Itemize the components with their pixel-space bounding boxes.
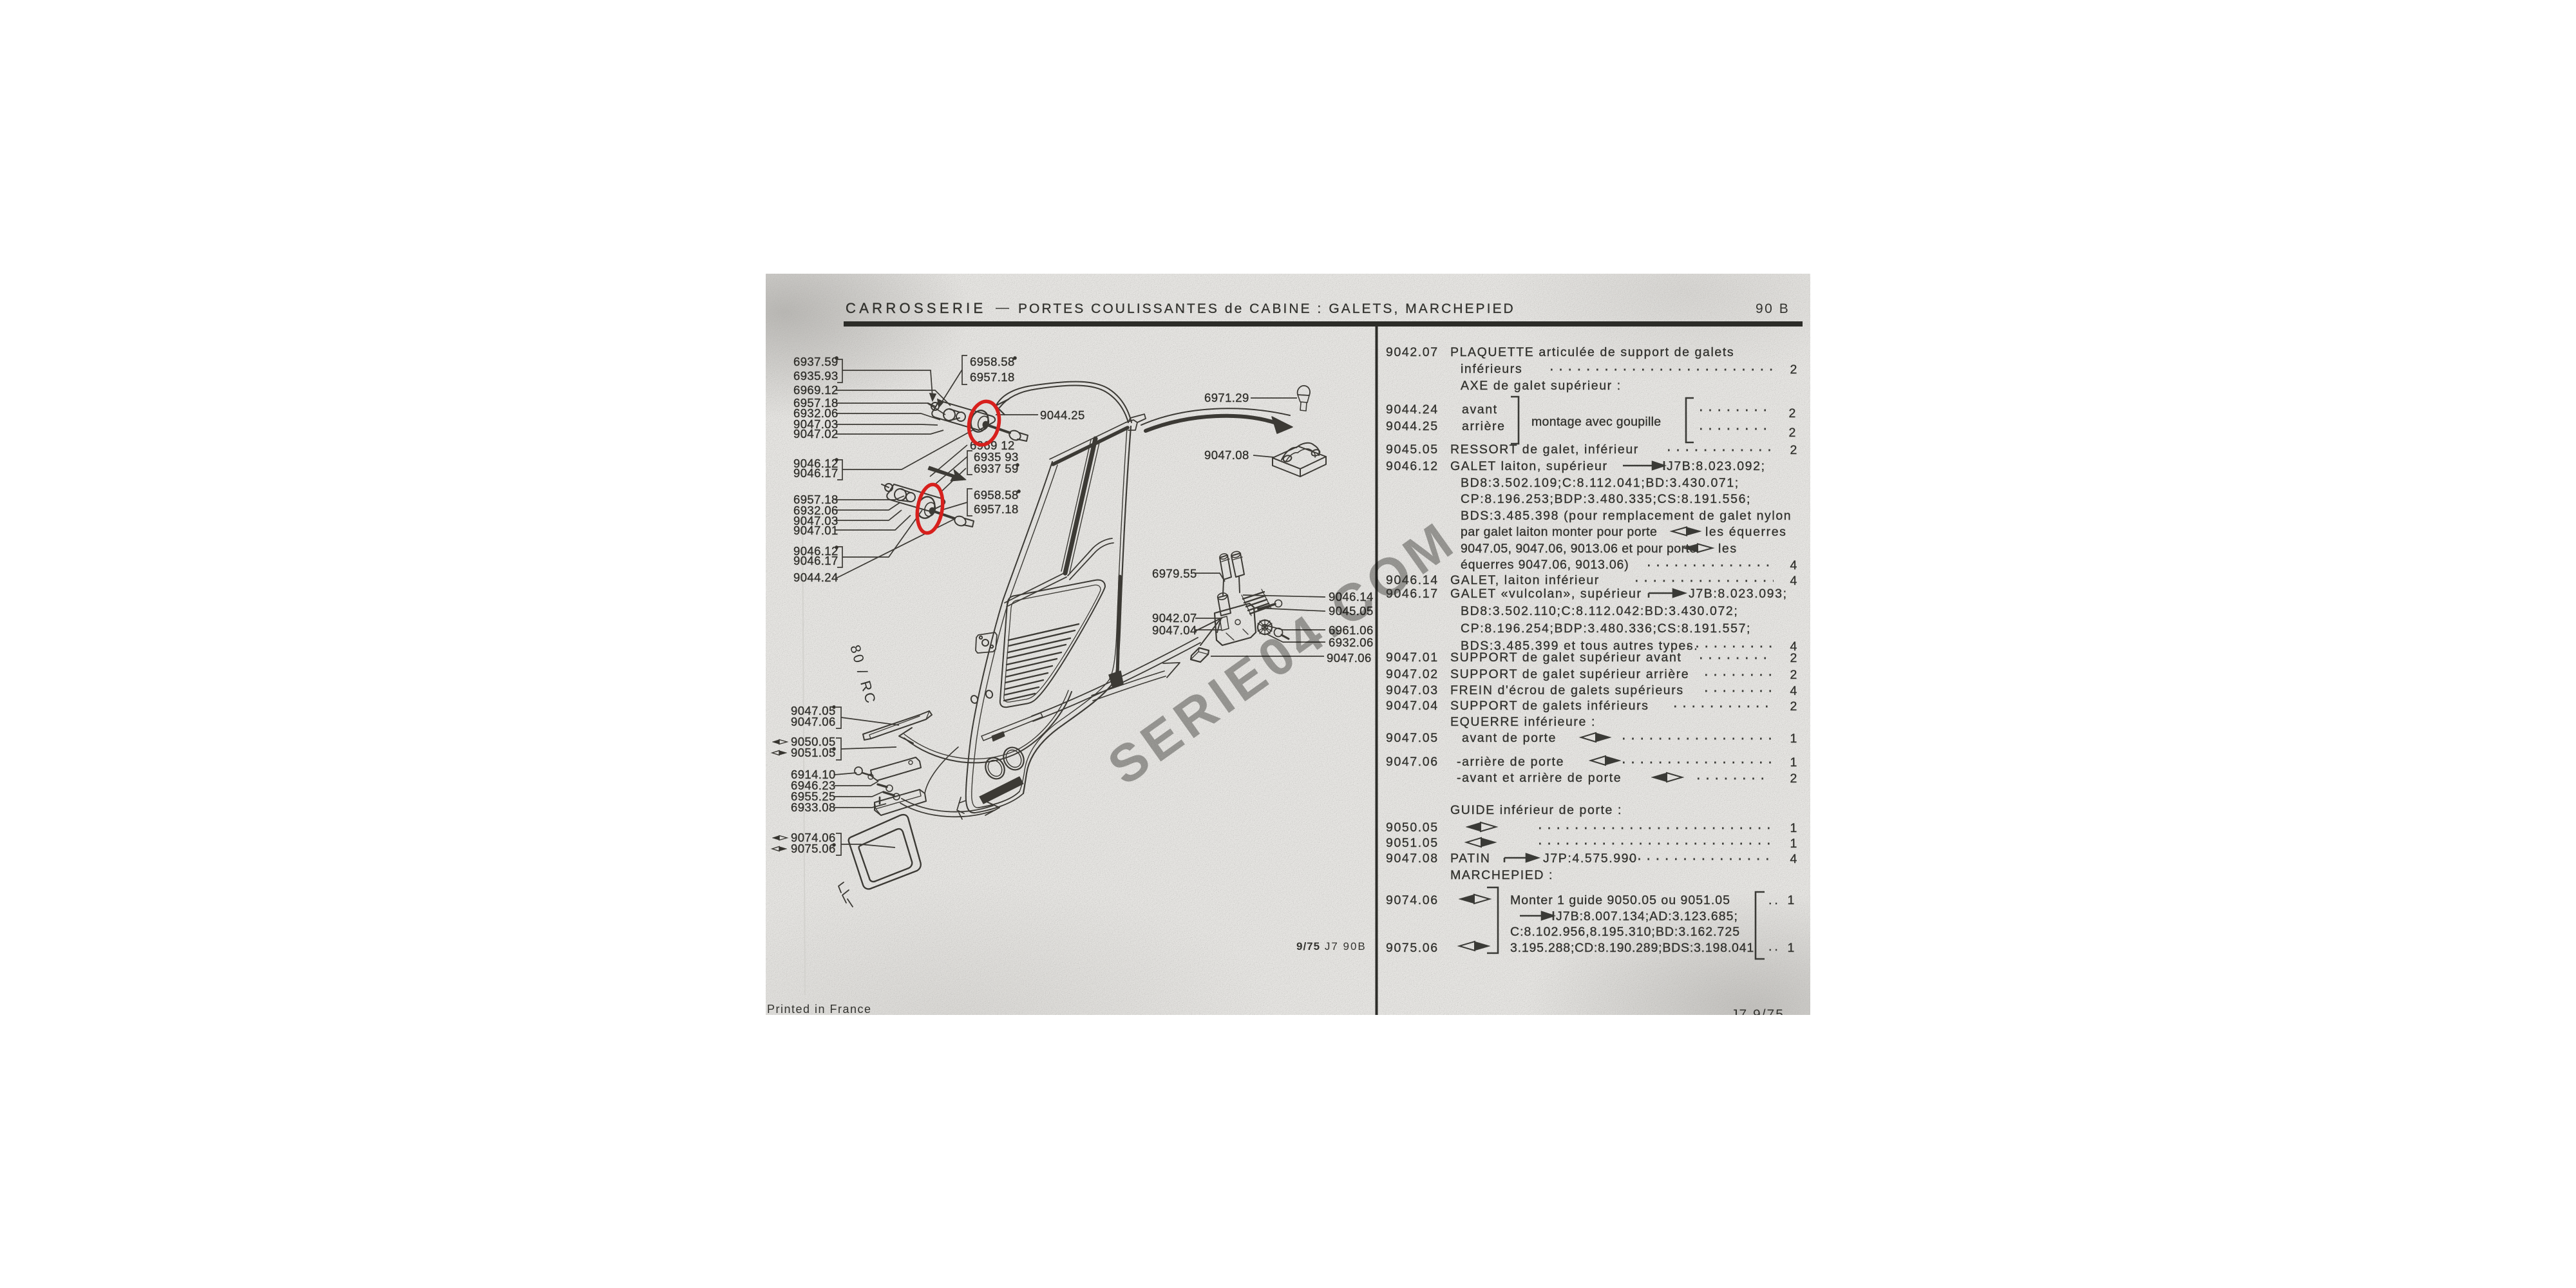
svg-text:SUPPORT de galet supérieur arr: SUPPORT de galet supérieur arrière <box>1450 667 1689 681</box>
svg-text:6933.08: 6933.08 <box>791 800 836 814</box>
svg-text:SUPPORT de galet supérieur ava: SUPPORT de galet supérieur avant <box>1450 650 1681 665</box>
svg-text:GALET «vulcolan», supérieur: GALET «vulcolan», supérieur <box>1450 587 1642 601</box>
svg-text:2: 2 <box>1790 668 1798 682</box>
svg-text:6937 59: 6937 59 <box>974 462 1019 475</box>
svg-text:6957.18: 6957.18 <box>974 502 1019 516</box>
svg-text:1: 1 <box>1788 893 1795 907</box>
svg-text:9047.02: 9047.02 <box>793 427 838 440</box>
svg-text:PORTES COULISSANTES de CABI: PORTES COULISSANTES de CABINE : GALETS, … <box>1018 301 1515 316</box>
svg-text:J7P:4.575.990: J7P:4.575.990 <box>1543 851 1638 866</box>
svg-text:9047.04: 9047.04 <box>1386 699 1439 713</box>
svg-text:CP:8.196.253;BDP:3.480.335;CS:: CP:8.196.253;BDP:3.480.335;CS:8.191.556; <box>1461 492 1751 506</box>
svg-text:2: 2 <box>1790 772 1798 786</box>
svg-text:9047.08: 9047.08 <box>1386 851 1439 866</box>
svg-text:9047.05: 9047.05 <box>1386 731 1439 745</box>
svg-text:CARROSSERIE: CARROSSERIE <box>846 300 986 316</box>
svg-text:6979.55: 6979.55 <box>1152 567 1197 580</box>
svg-text:9075.06: 9075.06 <box>1386 941 1439 955</box>
svg-text:9047.08: 9047.08 <box>1204 448 1249 462</box>
svg-text:4: 4 <box>1790 852 1798 866</box>
svg-text:SUPPORT de galets inférieurs: SUPPORT de galets inférieurs <box>1450 699 1649 713</box>
svg-text:90 B: 90 B <box>1756 301 1790 316</box>
svg-text:9051.05: 9051.05 <box>1386 836 1439 850</box>
svg-text:9046.14: 9046.14 <box>1386 573 1439 587</box>
svg-text:avant: avant <box>1462 402 1498 417</box>
svg-text:9042.07: 9042.07 <box>1386 345 1439 359</box>
svg-text:1: 1 <box>1790 755 1798 770</box>
svg-text:BDS:3.485.398 (pour remplaceme: BDS:3.485.398 (pour remplacement de gale… <box>1461 509 1792 523</box>
svg-text:-avant et arrière de porte: -avant et arrière de porte <box>1457 771 1622 785</box>
svg-text:1: 1 <box>1790 837 1798 851</box>
svg-text:..: .. <box>1768 940 1781 954</box>
svg-text:6935.93: 6935.93 <box>793 369 838 383</box>
svg-text:équerres 9047.06, 9013.06): équerres 9047.06, 9013.06) <box>1461 558 1629 572</box>
svg-text:9044.24: 9044.24 <box>1386 402 1439 417</box>
svg-text:J7B:8.023.092;: J7B:8.023.092; <box>1667 459 1766 473</box>
svg-text:9047.06: 9047.06 <box>791 715 836 728</box>
svg-text:9044.25: 9044.25 <box>1040 408 1085 422</box>
svg-text:9/75 J7 90B: 9/75 J7 90B <box>1296 940 1367 952</box>
svg-text:par galet laiton monter pour p: par galet laiton monter pour porte <box>1461 525 1657 539</box>
svg-text:9046.17: 9046.17 <box>793 554 838 567</box>
svg-text:9045.05: 9045.05 <box>1386 442 1439 457</box>
svg-text:MARCHEPIED :: MARCHEPIED : <box>1450 868 1553 882</box>
svg-text:4: 4 <box>1790 684 1798 698</box>
svg-text:PATIN: PATIN <box>1450 851 1491 866</box>
svg-text:RESSORT de galet, inférieur: RESSORT de galet, inférieur <box>1450 442 1639 457</box>
svg-text:Printed in France: Printed in France <box>767 1003 872 1016</box>
svg-text:9047.03: 9047.03 <box>1386 683 1439 697</box>
svg-text:GALET laiton, supérieur: GALET laiton, supérieur <box>1450 459 1608 473</box>
svg-text:6957.18: 6957.18 <box>970 370 1015 384</box>
svg-text:J7B:8.023.093;: J7B:8.023.093; <box>1689 587 1788 601</box>
svg-text:GALET, laiton inférieur: GALET, laiton inférieur <box>1450 573 1600 587</box>
svg-text:9047.02: 9047.02 <box>1386 667 1439 681</box>
svg-text:9044.25: 9044.25 <box>1386 419 1439 433</box>
svg-text:1: 1 <box>1788 941 1795 955</box>
svg-text:C:8.102.956,8.195.310;BD:3.162: C:8.102.956,8.195.310;BD:3.162.725 <box>1510 925 1740 939</box>
svg-text:2: 2 <box>1790 651 1798 665</box>
svg-text:1: 1 <box>1790 732 1798 746</box>
svg-text:CP:8.196.254;BDP:3.480.336;CS:: CP:8.196.254;BDP:3.480.336;CS:8.191.557; <box>1461 621 1751 636</box>
svg-text:9046.17: 9046.17 <box>793 466 838 480</box>
svg-text:2: 2 <box>1790 363 1798 377</box>
svg-text:6969.12: 6969.12 <box>793 383 838 397</box>
svg-text:9046.12: 9046.12 <box>1386 459 1439 473</box>
svg-text:les: les <box>1718 542 1738 556</box>
svg-text:9051.05: 9051.05 <box>791 746 836 759</box>
svg-text:9047.05, 9047.06, 9013.06 et p: 9047.05, 9047.06, 9013.06 et pour porte <box>1461 542 1697 556</box>
svg-text:Monter 1 guide 9050.05 ou 9051: Monter 1 guide 9050.05 ou 9051.05 <box>1510 893 1730 907</box>
svg-text:9042.07: 9042.07 <box>1152 611 1197 625</box>
svg-text:-arrière de porte: -arrière de porte <box>1457 755 1564 769</box>
svg-text:AXE de galet supérieur :: AXE de galet supérieur : <box>1461 379 1622 393</box>
svg-text:6958.58: 6958.58 <box>974 488 1019 502</box>
svg-text:..: .. <box>1768 893 1781 907</box>
svg-text:9047.01: 9047.01 <box>1386 650 1439 665</box>
svg-text:2: 2 <box>1789 426 1797 440</box>
svg-text:4: 4 <box>1790 574 1798 588</box>
svg-text:2: 2 <box>1790 699 1798 714</box>
svg-text:FREIN d'écrou de galets supéri: FREIN d'écrou de galets supérieurs <box>1450 683 1684 697</box>
svg-text:9050.05: 9050.05 <box>1386 820 1439 835</box>
svg-text:9044.24: 9044.24 <box>793 571 838 584</box>
svg-text:6971.29: 6971.29 <box>1204 391 1249 404</box>
svg-text:6937.59: 6937.59 <box>793 355 838 368</box>
svg-text:1: 1 <box>1790 821 1798 835</box>
svg-text:3.195.288;CD:8.190.289;BDS:3.1: 3.195.288;CD:8.190.289;BDS:3.198.041 <box>1510 941 1754 955</box>
svg-text:J7B:8.007.134;AD:3.123.685;: J7B:8.007.134;AD:3.123.685; <box>1556 909 1738 923</box>
svg-text:montage avec goupille: montage avec goupille <box>1531 415 1661 429</box>
svg-text:les équerres: les équerres <box>1705 525 1787 539</box>
svg-text:inférieurs: inférieurs <box>1461 362 1522 376</box>
svg-text:4: 4 <box>1790 558 1798 573</box>
svg-text:arrière: arrière <box>1462 419 1506 433</box>
svg-text:avant de porte: avant de porte <box>1462 731 1557 745</box>
svg-text:2: 2 <box>1789 406 1797 421</box>
svg-text:6958.58: 6958.58 <box>970 355 1015 368</box>
svg-text:—: — <box>996 300 1009 315</box>
svg-text:EQUERRE inférieure :: EQUERRE inférieure : <box>1450 715 1596 729</box>
svg-text:9047.06: 9047.06 <box>1327 651 1372 665</box>
svg-text:GUIDE inférieur de porte :: GUIDE inférieur de porte : <box>1450 803 1622 817</box>
svg-text:9074.06: 9074.06 <box>1386 893 1439 907</box>
svg-text:BD8:3.502.109;C:8.112.041;BD:3: BD8:3.502.109;C:8.112.041;BD:3.430.071; <box>1461 476 1739 490</box>
svg-text:9047.06: 9047.06 <box>1386 755 1439 769</box>
svg-text:BD8:3.502.110;C:8.112.042:BD:3: BD8:3.502.110;C:8.112.042:BD:3.430.072; <box>1461 604 1738 618</box>
svg-text:2: 2 <box>1790 443 1798 457</box>
svg-text:9046.17: 9046.17 <box>1386 587 1439 601</box>
svg-text:PLAQUETTE articulée de support: PLAQUETTE articulée de support de galets <box>1450 345 1734 359</box>
svg-text:J7 9/75: J7 9/75 <box>1731 1007 1785 1022</box>
svg-text:9047.04: 9047.04 <box>1152 623 1197 637</box>
svg-text:9047.01: 9047.01 <box>793 524 838 537</box>
svg-text:9075.06: 9075.06 <box>791 842 836 855</box>
